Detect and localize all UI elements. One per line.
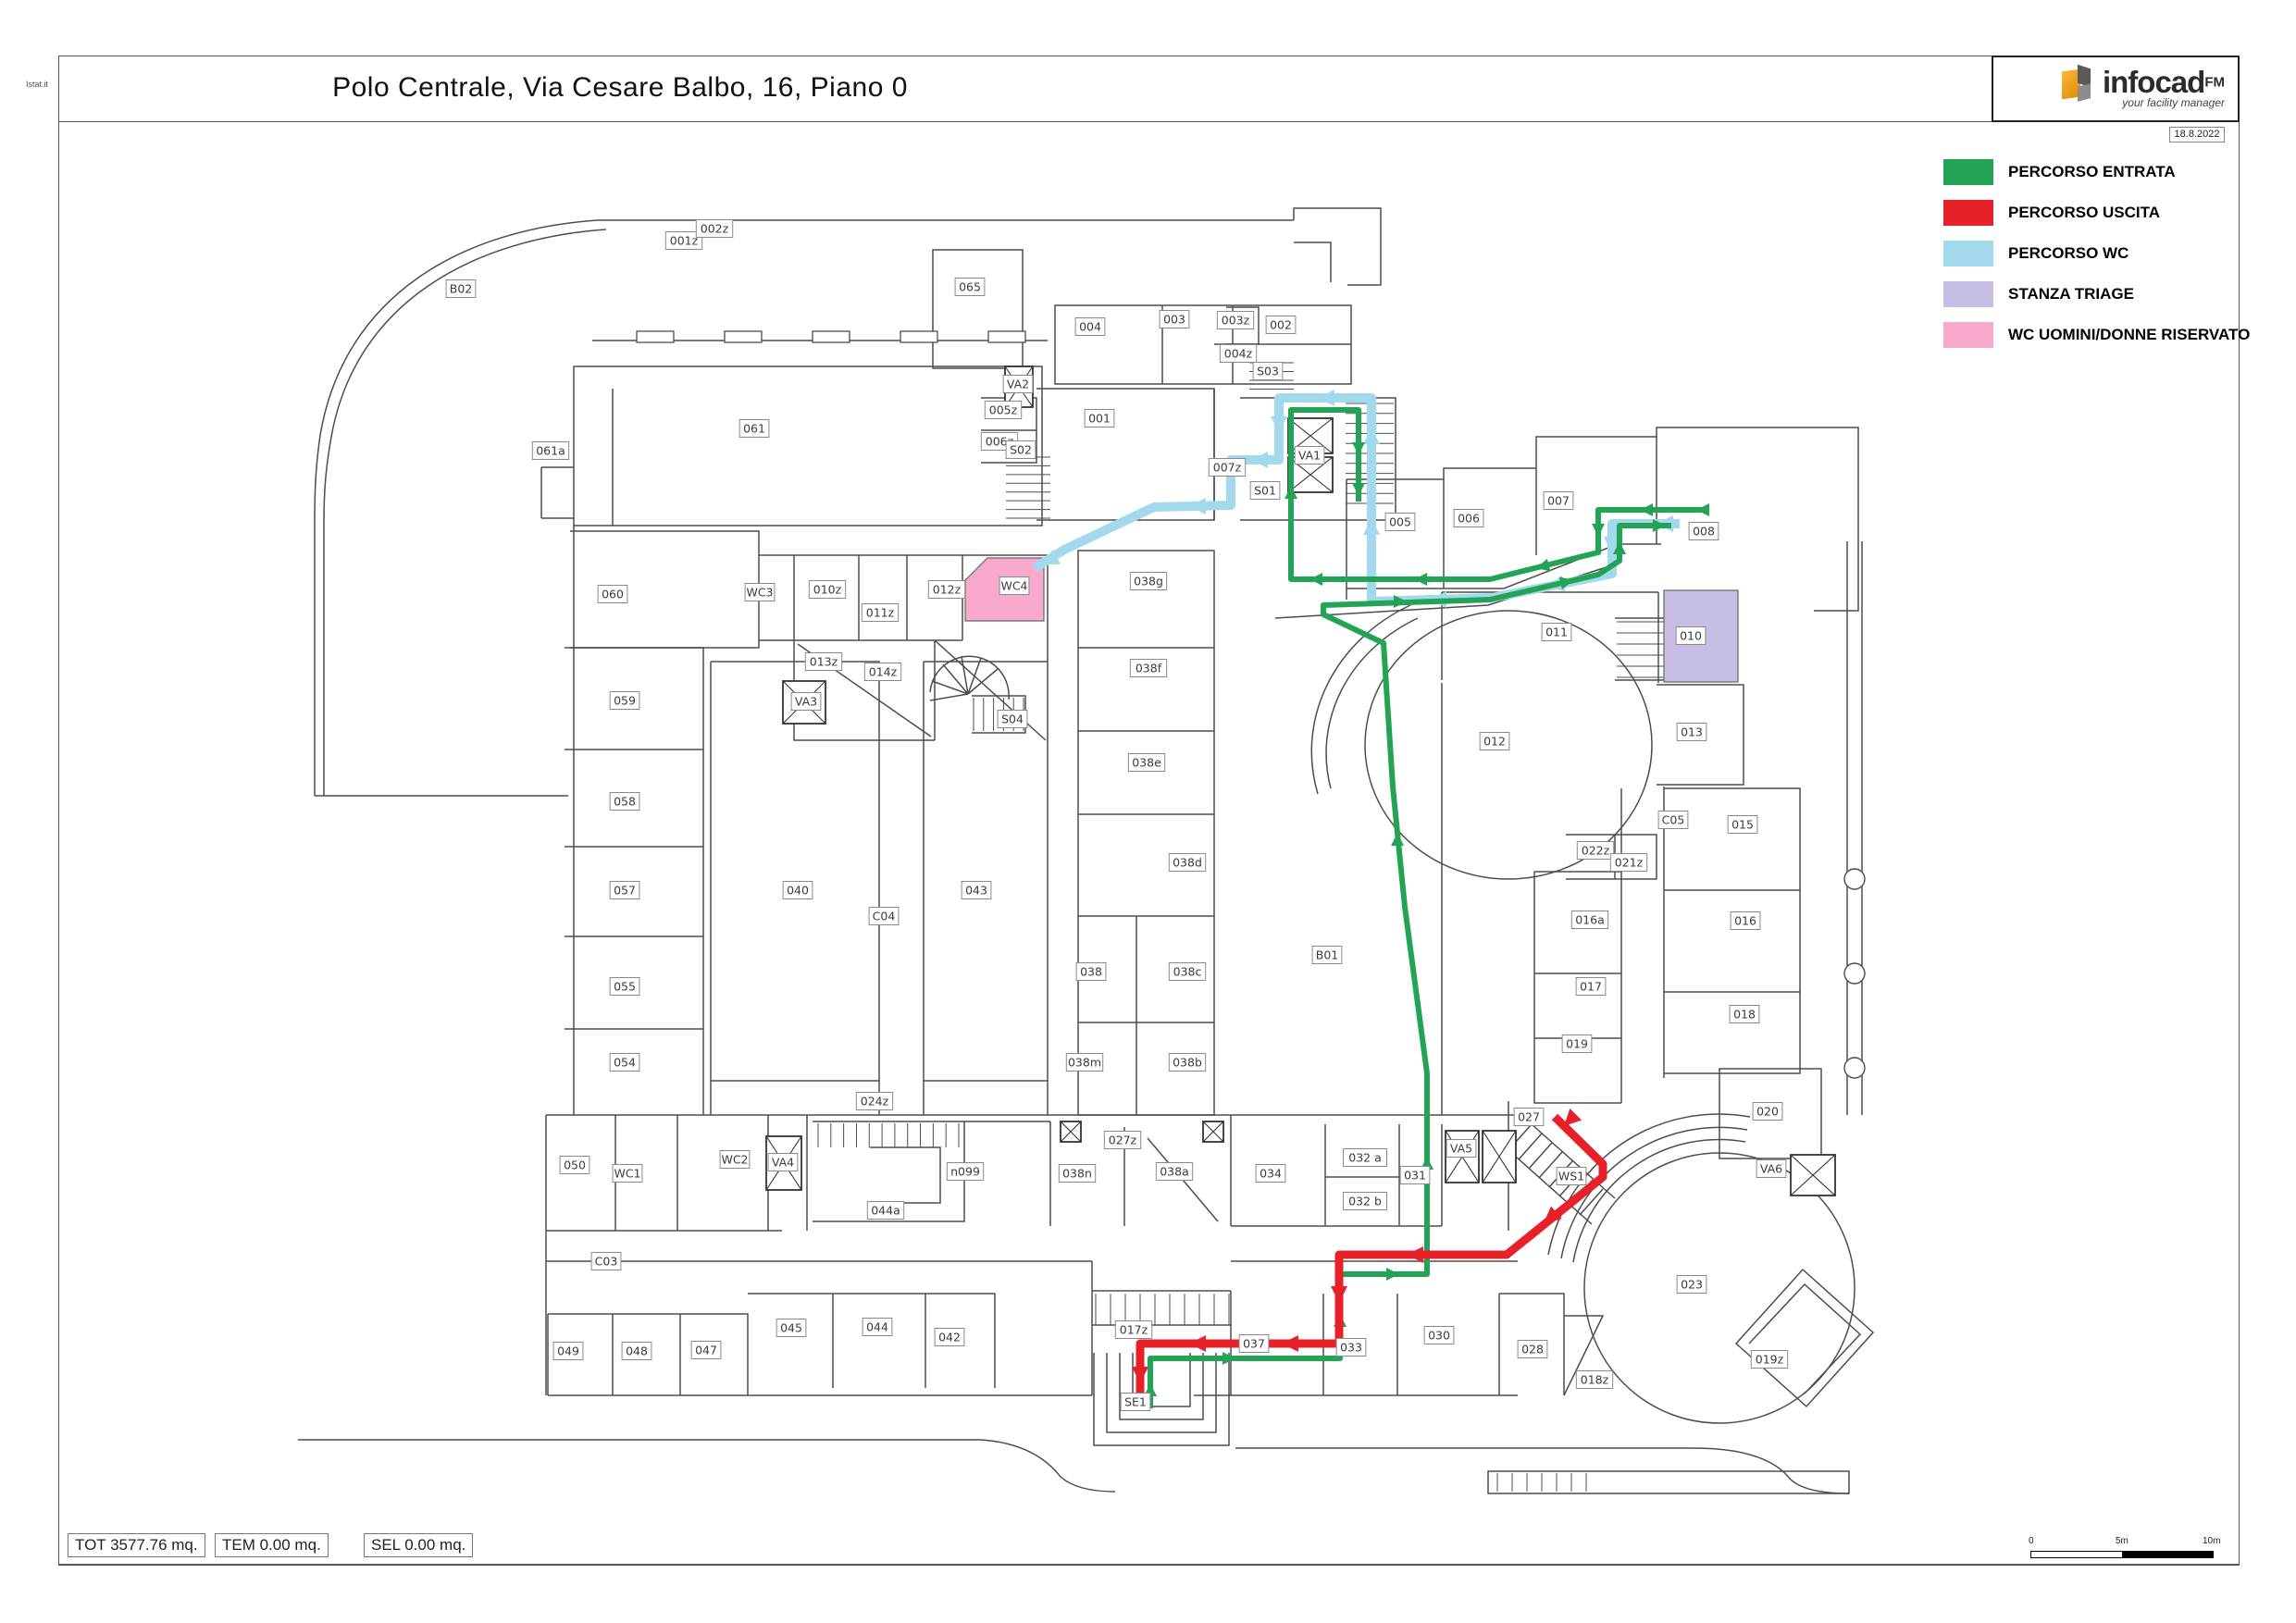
plan-line: 023 [1681, 1278, 1703, 1292]
room-label-VA4: VA4 [768, 1154, 798, 1171]
plan-line: C03 [595, 1255, 618, 1269]
room-label-002z: 002z [696, 220, 732, 238]
plan-line [870, 1147, 940, 1203]
plan-line: 048 [626, 1344, 648, 1358]
status-tem: TEM 0.00 mq. [215, 1533, 329, 1557]
plan-line: 017z [1120, 1323, 1148, 1337]
plan-line: 011z [866, 606, 895, 620]
plan-line [933, 250, 1023, 368]
room-label-011: 011 [1542, 624, 1571, 641]
plan-line: 059 [614, 694, 636, 708]
plan-line [315, 220, 598, 796]
room-label-017: 017 [1576, 978, 1606, 996]
room-label-010z: 010z [809, 581, 845, 599]
room-label-WC4: WC4 [999, 577, 1029, 595]
scale-bar: 0 5m 10m [2025, 1536, 2219, 1562]
plan-line: 038m [1068, 1056, 1101, 1070]
plan-line: 011 [1545, 626, 1568, 639]
floorplan: B02001z002z065004003003z002004zS03VA2005… [0, 0, 2296, 1623]
status-tot: TOT 3577.76 mq. [68, 1533, 205, 1557]
plan-line [1749, 1284, 1860, 1394]
plan-line: 033 [1340, 1341, 1362, 1355]
plan-line [1150, 526, 1671, 1408]
room-label-014z: 014z [864, 663, 900, 681]
room-label-028: 028 [1518, 1341, 1547, 1358]
room-label-016: 016 [1731, 912, 1760, 930]
room-label-038d: 038d [1169, 854, 1205, 872]
plan-line [1847, 541, 1862, 1115]
route-arrow [1414, 573, 1427, 586]
room-label-015: 015 [1728, 816, 1757, 834]
plan-line: 065 [959, 280, 981, 294]
plan-line: 013 [1681, 725, 1703, 739]
plan-line: 017 [1580, 980, 1602, 994]
stair-treads [818, 363, 1664, 1492]
plan-line: 010z [813, 583, 842, 597]
room-label-017z: 017z [1115, 1321, 1151, 1339]
plan-line [1078, 551, 1214, 1115]
room-label-034: 034 [1256, 1165, 1285, 1183]
route-arrow [1386, 1268, 1399, 1281]
room-label-030: 030 [1424, 1327, 1454, 1344]
plan-line: VA4 [772, 1156, 794, 1170]
status-sel: SEL 0.00 mq. [364, 1533, 473, 1557]
plan-line: 015 [1731, 818, 1754, 832]
plan-line: 027z [1109, 1134, 1137, 1147]
plan-line: WS1 [1558, 1170, 1584, 1183]
plan-line: 013z [810, 655, 838, 669]
drawing-sheet: Istat.it Polo Centrale, Via Cesare Balbo… [0, 0, 2296, 1623]
plan-line: 038 [1080, 965, 1102, 979]
plan-line [1094, 1353, 1229, 1445]
plan-line: 024z [861, 1095, 889, 1109]
plan-line [988, 331, 1025, 342]
room-label-037: 037 [1239, 1335, 1269, 1353]
plan-line: 058 [614, 795, 636, 809]
plan-line [1617, 622, 1664, 677]
plan-line [725, 331, 762, 342]
room-label-010: 010 [1676, 627, 1706, 645]
elevator-shafts [766, 366, 1835, 1196]
plan-line: 031 [1404, 1169, 1426, 1183]
route-arrow [1331, 1286, 1347, 1303]
plan-line: 054 [614, 1056, 636, 1070]
route-arrow [1132, 1367, 1148, 1383]
room-label-003z: 003z [1217, 312, 1253, 329]
room-label-038a: 038a [1156, 1163, 1192, 1181]
room-label-007z: 007z [1209, 459, 1245, 477]
plan-line [298, 1440, 1115, 1492]
plan-line [1736, 1270, 1873, 1406]
room-label-VA3: VA3 [791, 693, 821, 711]
plan-line: 003 [1163, 313, 1185, 327]
room-label-S01: S01 [1250, 482, 1280, 500]
room-label-038m: 038m [1066, 1054, 1102, 1072]
plan-line: 014z [869, 665, 898, 679]
room-label-011z: 011z [862, 604, 898, 622]
plan-line [1844, 963, 1865, 984]
room-label-013: 013 [1677, 724, 1706, 741]
room-labels: B02001z002z065004003003z002004zS03VA2005… [446, 220, 1788, 1411]
room-label-005: 005 [1385, 514, 1415, 531]
plan-line: S04 [1001, 712, 1024, 726]
plan-line: 040 [787, 884, 809, 898]
plan-line [1497, 1473, 1586, 1492]
plan-line: 005 [1389, 515, 1411, 529]
plan-line [1096, 1294, 1229, 1325]
plan-line: 002 [1270, 318, 1292, 332]
plan-line: 004 [1079, 320, 1101, 334]
room-label-032 a: 032 a [1344, 1149, 1387, 1167]
room-label-047: 047 [691, 1342, 721, 1359]
route-arrow [1189, 1335, 1206, 1352]
plan-line [1006, 457, 1050, 518]
plan-line: 020 [1756, 1105, 1779, 1119]
room-label-012z: 012z [928, 581, 964, 599]
plan-line: 016 [1734, 914, 1756, 928]
room-label-VA1: VA1 [1295, 447, 1324, 465]
route-arrow [1363, 427, 1380, 444]
room-label-n099: n099 [947, 1163, 983, 1181]
plan-line: 002z [701, 222, 729, 236]
plan-line: 001z [670, 234, 699, 248]
room-label-VA5: VA5 [1446, 1140, 1476, 1158]
plan-line: 018z [1581, 1373, 1609, 1387]
plan-line: 006 [1458, 512, 1480, 526]
plan-line: WC1 [614, 1167, 640, 1181]
room-label-043: 043 [962, 882, 991, 899]
plan-line [1844, 869, 1865, 889]
plan-line: 018 [1733, 1008, 1756, 1022]
room-label-038g: 038g [1130, 573, 1166, 590]
room-label-038b: 038b [1169, 1054, 1205, 1072]
room-label-023: 023 [1677, 1276, 1706, 1294]
room-label-024z: 024z [856, 1093, 892, 1110]
route-arrow [1696, 503, 1709, 516]
room-label-B02: B02 [446, 280, 476, 298]
plan-line: 042 [938, 1331, 961, 1344]
plan-line: n099 [950, 1165, 980, 1179]
plan-line: 007 [1547, 494, 1570, 508]
plan-line [1844, 1058, 1865, 1078]
room-label-S02: S02 [1006, 441, 1036, 459]
plan-line: WC3 [746, 586, 773, 600]
plan-line: 030 [1428, 1329, 1450, 1343]
plan-line [1508, 1124, 1603, 1215]
route-arrow [1189, 498, 1206, 514]
plan-line [637, 331, 674, 342]
plan-line: 032 a [1348, 1151, 1382, 1165]
plan-line: VA2 [1007, 378, 1029, 391]
room-label-044: 044 [863, 1319, 892, 1336]
plan-line: 034 [1260, 1167, 1282, 1181]
route-arrow [1251, 452, 1268, 468]
plan-line: 010 [1680, 629, 1702, 643]
plan-line: 043 [965, 884, 987, 898]
plan-line: B01 [1316, 948, 1338, 962]
plan-line: 022z [1582, 844, 1610, 858]
plan-line: 047 [695, 1344, 717, 1357]
room-label-S04: S04 [998, 711, 1027, 728]
plan-line [1664, 890, 1800, 992]
room-label-007: 007 [1544, 492, 1573, 510]
room-label-WC1: WC1 [613, 1165, 642, 1183]
plan-line: S02 [1010, 443, 1032, 457]
plan-line [1092, 1291, 1231, 1325]
plan-line: 061 [743, 422, 765, 436]
plan-line: VA6 [1760, 1162, 1782, 1176]
plan-line: 007z [1213, 461, 1242, 475]
room-label-B01: B01 [1312, 947, 1342, 964]
room-label-013z: 013z [805, 653, 841, 671]
room-label-C05: C05 [1658, 811, 1688, 829]
plan-line [1294, 208, 1381, 285]
plan-line: SE1 [1124, 1395, 1147, 1409]
plan-line: VA5 [1450, 1142, 1472, 1156]
room-label-WC3: WC3 [745, 584, 775, 601]
room-label-002: 002 [1266, 316, 1296, 334]
room-label-019z: 019z [1751, 1351, 1787, 1369]
plan-line: VA3 [795, 695, 817, 709]
plan-line: 003z [1222, 314, 1250, 328]
route-arrow [1318, 390, 1334, 406]
plan-line: 028 [1521, 1343, 1544, 1357]
plan-line: 044a [871, 1204, 900, 1218]
plan-line: 005z [989, 403, 1018, 417]
room-label-027: 027 [1514, 1109, 1544, 1126]
room-label-012: 012 [1480, 733, 1509, 750]
room-label-058: 058 [610, 793, 639, 811]
plan-line: C05 [1662, 813, 1685, 827]
room-label-065: 065 [955, 279, 985, 296]
room-label-033: 033 [1336, 1339, 1366, 1357]
scale-10m: 10m [2203, 1536, 2220, 1546]
plan-line: 021z [1615, 856, 1644, 870]
room-label-027z: 027z [1104, 1132, 1140, 1149]
room-label-038c: 038c [1169, 963, 1205, 981]
plan-line: 055 [614, 980, 636, 994]
route-arrow [1271, 416, 1287, 433]
room-label-038e: 038e [1128, 754, 1164, 772]
room-label-022z: 022z [1577, 842, 1613, 860]
plan-line [541, 467, 574, 518]
room-label-005z: 005z [985, 402, 1021, 419]
plan-line: WC2 [721, 1153, 748, 1167]
room-label-042: 042 [935, 1329, 964, 1346]
plan-line: 027 [1518, 1110, 1540, 1124]
room-label-049: 049 [553, 1343, 583, 1360]
room-label-050: 050 [560, 1157, 590, 1174]
plan-line: WC4 [1000, 579, 1027, 593]
plan-line: S01 [1254, 484, 1276, 498]
plan-line: 061a [536, 444, 565, 458]
plan-line [1275, 564, 1615, 618]
route-arrow [1352, 483, 1365, 496]
room-label-018: 018 [1730, 1006, 1759, 1023]
plan-line [324, 229, 606, 796]
plan-line: 038e [1132, 756, 1161, 770]
plan-line [1814, 541, 1858, 611]
plan-line [813, 331, 850, 342]
plan-line: B02 [450, 282, 472, 296]
plan-line: C04 [873, 910, 896, 923]
room-label-S03: S03 [1253, 363, 1283, 380]
room-label-057: 057 [610, 882, 639, 899]
plan-line: 019z [1756, 1353, 1784, 1367]
plan-line [818, 1123, 959, 1147]
plan-line [1294, 242, 1331, 282]
room-label-048: 048 [622, 1343, 652, 1360]
room-label-VA2: VA2 [1003, 376, 1033, 393]
plan-line: 016a [1575, 913, 1605, 927]
plan-line: 001 [1088, 412, 1111, 426]
room-label-019: 019 [1562, 1035, 1592, 1053]
room-label-061a: 061a [532, 442, 568, 460]
scale-5m: 5m [2116, 1536, 2128, 1546]
route-arrow [1309, 573, 1322, 586]
plan-line: 038a [1160, 1165, 1189, 1179]
room-label-040: 040 [783, 882, 813, 899]
room-label-004: 004 [1075, 318, 1105, 336]
room-label-032 b: 032 b [1344, 1193, 1387, 1210]
plan-line: 038f [1136, 662, 1162, 675]
plan-line [900, 331, 937, 342]
room-label-C03: C03 [591, 1253, 621, 1270]
route-arrow [1640, 503, 1653, 516]
room-label-C04: C04 [869, 908, 899, 925]
room-label-044a: 044a [867, 1202, 903, 1220]
plan-line: 038g [1134, 575, 1163, 588]
room-label-055: 055 [610, 978, 639, 996]
route-arrow [1592, 524, 1605, 537]
route-arrow [1282, 1335, 1298, 1352]
room-label-WC2: WC2 [720, 1151, 750, 1169]
plan-line: VA1 [1298, 449, 1321, 463]
plan-line: 038d [1173, 856, 1202, 870]
plan-line [930, 656, 998, 700]
plan-line: 019 [1566, 1037, 1588, 1051]
plan-line [574, 366, 1042, 526]
plan-line: 050 [564, 1158, 586, 1172]
plan-line: 004z [1224, 347, 1253, 361]
plan-line: 049 [557, 1344, 579, 1358]
room-label-018z: 018z [1576, 1371, 1612, 1389]
plan-line: 012z [933, 583, 962, 597]
room-label-VA6: VA6 [1756, 1160, 1786, 1178]
room-label-031: 031 [1400, 1167, 1430, 1184]
plan-line [935, 640, 1046, 740]
room-label-038: 038 [1076, 963, 1106, 981]
plan-line [1036, 389, 1214, 520]
room-label-045: 045 [776, 1319, 806, 1337]
room-label-054: 054 [610, 1054, 639, 1072]
room-label-006: 006 [1454, 510, 1483, 527]
plan-line: 045 [780, 1321, 802, 1335]
scale-0: 0 [2029, 1536, 2034, 1546]
room-label-003: 003 [1160, 311, 1189, 328]
room-label-038f: 038f [1130, 660, 1166, 677]
room-label-016a: 016a [1571, 911, 1607, 929]
room-label-060: 060 [598, 586, 627, 603]
room-label-059: 059 [610, 692, 639, 710]
room-label-020: 020 [1753, 1103, 1782, 1121]
plan-line: 044 [866, 1320, 888, 1334]
room-label-004z: 004z [1220, 345, 1256, 363]
plan-line: 037 [1243, 1337, 1265, 1351]
room-label-038n: 038n [1059, 1165, 1095, 1183]
plan-line: 038c [1173, 965, 1202, 979]
plan-line: S03 [1257, 365, 1279, 378]
plan-line: 032 b [1348, 1195, 1382, 1208]
room-label-008: 008 [1689, 523, 1719, 540]
plan-line [1291, 410, 1703, 579]
plan-line: 008 [1693, 525, 1715, 539]
room-label-001: 001 [1085, 410, 1114, 427]
scale-bar-fill [2122, 1551, 2214, 1558]
plan-line: 012 [1483, 735, 1506, 749]
plan-line: 060 [602, 588, 624, 601]
plan-line: 038n [1062, 1167, 1092, 1181]
plan-line: 038b [1173, 1056, 1202, 1070]
room-label-WS1: WS1 [1557, 1168, 1586, 1185]
plan-line: 057 [614, 884, 636, 898]
room-label-021z: 021z [1610, 854, 1646, 872]
room-label-SE1: SE1 [1121, 1394, 1150, 1411]
room-label-061: 061 [739, 420, 769, 438]
walls [298, 208, 1873, 1493]
